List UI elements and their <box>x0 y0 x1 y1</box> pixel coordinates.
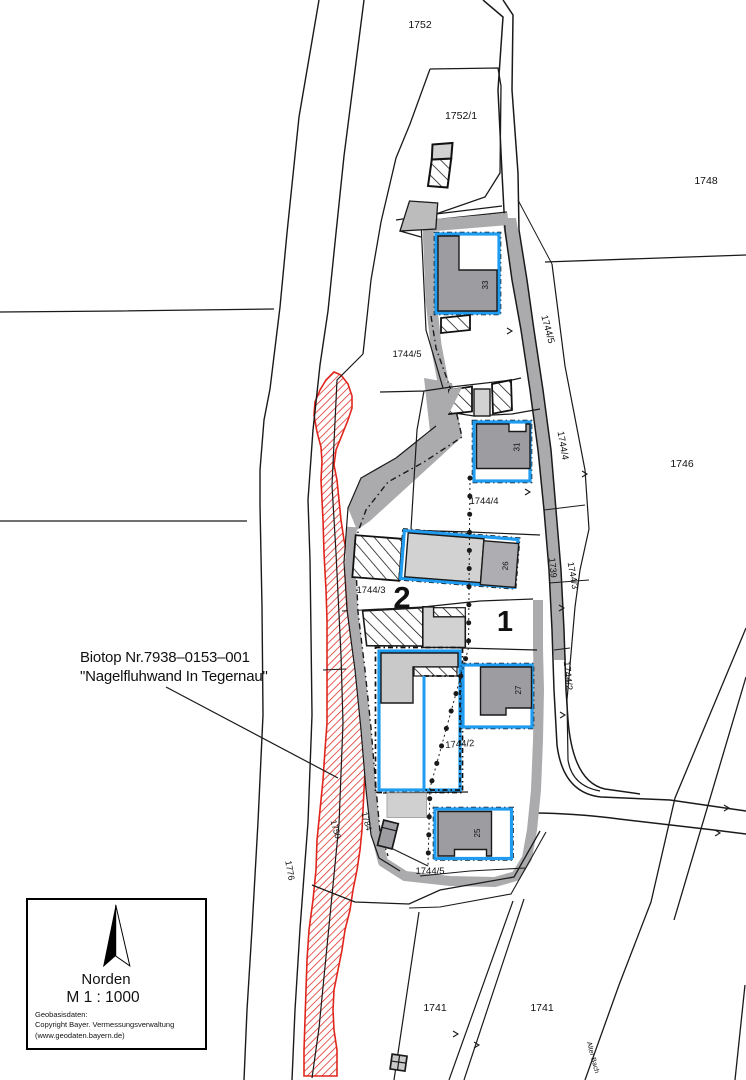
svg-text:1744/4: 1744/4 <box>469 496 498 507</box>
svg-text:1744/2: 1744/2 <box>445 738 475 751</box>
svg-text:Biotop Nr.7938–0153–001: Biotop Nr.7938–0153–001 <box>80 649 250 666</box>
svg-text:1746: 1746 <box>670 458 694 470</box>
svg-text:1752/1: 1752/1 <box>445 110 477 122</box>
svg-text:(www.geodaten.bayern.de): (www.geodaten.bayern.de) <box>35 1031 125 1040</box>
svg-text:1741: 1741 <box>423 1002 447 1014</box>
svg-text:1: 1 <box>497 606 513 638</box>
svg-text:M 1 : 1000: M 1 : 1000 <box>66 989 140 1006</box>
svg-text:1744/5: 1744/5 <box>392 349 421 360</box>
svg-text:25: 25 <box>473 828 482 837</box>
svg-text:Geobasisdaten:: Geobasisdaten: <box>35 1010 88 1019</box>
svg-text:27: 27 <box>514 685 523 694</box>
svg-text:1739: 1739 <box>547 557 559 578</box>
svg-text:2: 2 <box>393 580 410 615</box>
svg-text:26: 26 <box>501 561 511 571</box>
svg-text:1744/3: 1744/3 <box>356 585 385 596</box>
svg-text:1748: 1748 <box>694 175 718 187</box>
svg-text:31: 31 <box>513 442 522 451</box>
svg-text:1752: 1752 <box>408 19 432 31</box>
svg-text:Copyright Bayer. Vermessungsve: Copyright Bayer. Vermessungsverwaltung <box>35 1020 174 1029</box>
svg-text:1744/5: 1744/5 <box>415 866 444 877</box>
svg-text:1741: 1741 <box>530 1002 554 1014</box>
svg-text:Norden: Norden <box>81 971 130 988</box>
svg-text:"Nagelfluhwand In Tegernau": "Nagelfluhwand In Tegernau" <box>80 668 268 685</box>
svg-text:33: 33 <box>481 280 490 289</box>
